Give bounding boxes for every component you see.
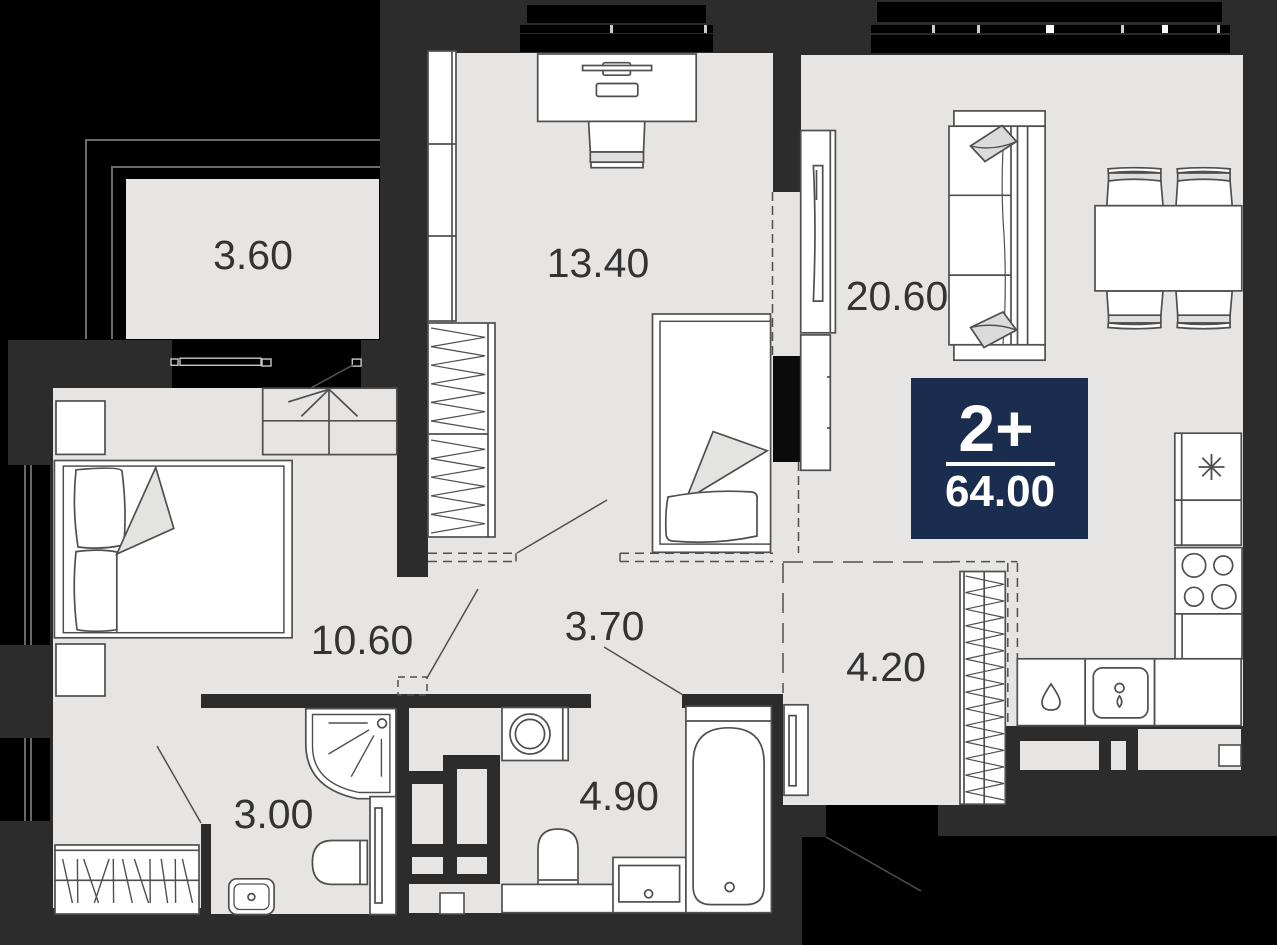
svg-text:20.60: 20.60	[846, 273, 949, 319]
svg-text:4.90: 4.90	[579, 773, 659, 819]
svg-text:3.00: 3.00	[234, 791, 314, 837]
svg-text:3.70: 3.70	[565, 603, 645, 649]
svg-text:13.40: 13.40	[547, 240, 650, 286]
svg-text:2+: 2+	[958, 391, 1033, 465]
svg-text:10.60: 10.60	[311, 617, 414, 663]
svg-text:64.00: 64.00	[945, 467, 1055, 516]
svg-text:4.20: 4.20	[846, 644, 926, 690]
svg-text:3.60: 3.60	[213, 232, 293, 278]
